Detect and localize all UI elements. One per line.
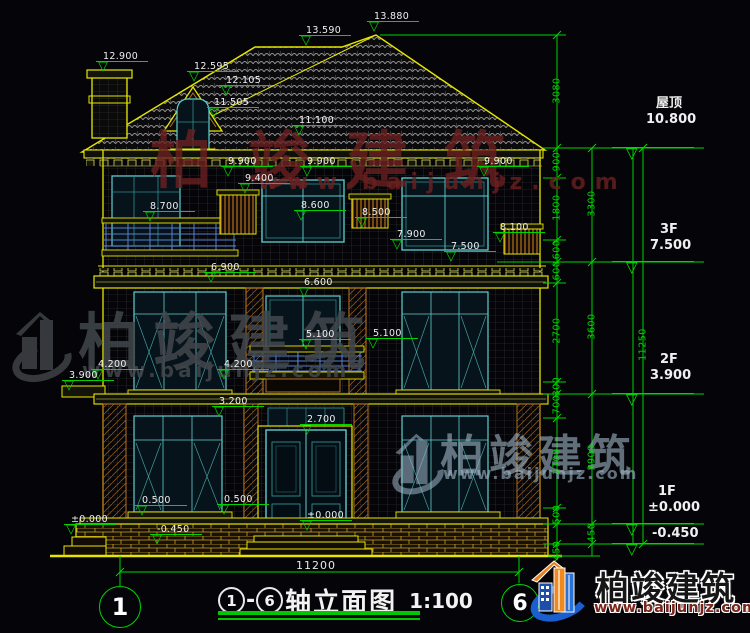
band-2f (94, 394, 548, 404)
axis-bubble-1: 1 (99, 586, 141, 628)
title-scale: 1:100 (409, 589, 473, 613)
title-axis-start-bubble: 1 (218, 587, 245, 614)
chimney (87, 70, 132, 138)
title-underline-thick (218, 611, 420, 615)
roof (82, 35, 545, 152)
title-underline-thin (218, 618, 420, 620)
window-3f-left (112, 176, 180, 246)
window-3f-right (402, 178, 488, 250)
brand-logo-block: 柏竣建筑 www.baijunjz.com (530, 556, 750, 630)
eave-cornice (84, 150, 543, 166)
balcony-3f-far-right (501, 224, 543, 254)
elevation-drawing (0, 0, 750, 633)
window-1f-left (128, 416, 232, 518)
window-1f-right (396, 416, 500, 518)
brand-logo-icon (530, 556, 594, 626)
cad-drawing-canvas[interactable]: 柏竣建筑 www.baijunjz.com 柏竣建筑 www.baijunjz.… (0, 0, 750, 633)
title-axis-end-bubble: 6 (256, 587, 283, 614)
wood-grille-left (217, 190, 259, 234)
window-3f-center (262, 180, 344, 242)
plinth-base (50, 518, 562, 556)
brand-site-url: www.baijunjz.com (594, 600, 750, 616)
window-2f-right (396, 292, 500, 396)
window-2f-left (128, 292, 232, 396)
title-separator: - (246, 588, 255, 613)
window-2f-center (266, 296, 340, 350)
wood-grille-right (349, 194, 391, 228)
cornice-3f (94, 266, 548, 288)
